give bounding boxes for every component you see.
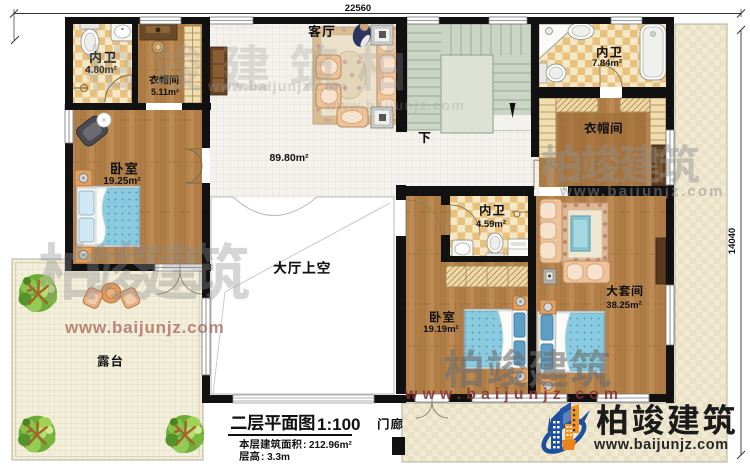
svg-text:19.19m²: 19.19m² [423,324,458,335]
svg-text:7.84m²: 7.84m² [592,58,622,69]
svg-text:www.baijunjz.com: www.baijunjz.com [324,97,465,113]
svg-text:4.59m²: 4.59m² [476,219,506,230]
svg-text:www.baijunjz.com: www.baijunjz.com [207,78,348,94]
svg-text:212.96m²: 212.96m² [309,440,352,451]
svg-text:38.25m²: 38.25m² [606,300,641,311]
svg-text:1:100: 1:100 [317,415,360,434]
svg-text:www.baijunjz.com: www.baijunjz.com [559,183,725,200]
svg-text:14040: 14040 [727,228,738,254]
svg-text::: : [303,439,307,451]
svg-text:19.25m²: 19.25m² [103,176,141,187]
svg-text:89.80m²: 89.80m² [269,152,309,164]
svg-text:22560: 22560 [345,3,371,14]
svg-text:www.baijunjz.com: www.baijunjz.com [593,437,729,453]
svg-text:www.baijunjz.com: www.baijunjz.com [404,386,623,403]
svg-text:www.baijunjz.com: www.baijunjz.com [64,318,225,337]
svg-text:: 3.3m: : 3.3m [261,452,290,463]
